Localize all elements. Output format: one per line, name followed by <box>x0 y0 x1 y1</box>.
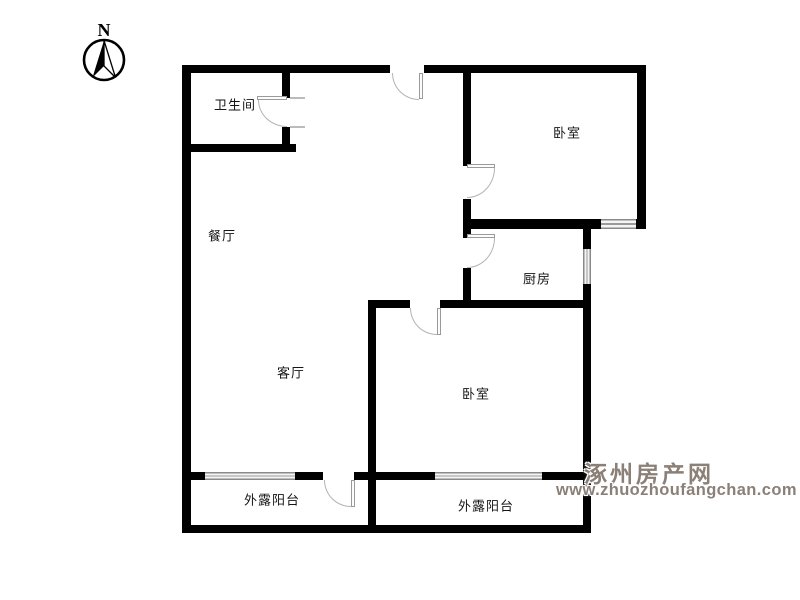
door-swing-kitchen <box>467 238 495 268</box>
window-kitchen <box>583 249 591 284</box>
wall-bedroom-top-bottom-b <box>636 219 646 229</box>
room-label-kitchen: 厨房 <box>523 269 551 288</box>
compass-icon <box>81 37 127 83</box>
wall-living-bottom-b <box>295 472 323 480</box>
door-swing-bedroom-bottom <box>410 308 437 335</box>
door-swing-bedroom-top <box>467 168 495 198</box>
room-label-bedroom-bottom: 卧室 <box>462 384 490 403</box>
wall-right-outer-upper <box>637 65 646 229</box>
wall-bottom-outer <box>182 525 591 533</box>
watermark-site-url: www.zhuozhoufangchan.com <box>556 481 797 500</box>
door-leaf-bedroom-bottom <box>437 308 441 335</box>
door-jamb-bathroom-bottom <box>290 126 305 128</box>
wall-bedroom-bottom-left <box>368 300 376 533</box>
door-swing-entrance <box>392 73 419 100</box>
room-label-balcony-left: 外露阳台 <box>244 490 300 509</box>
wall-top-right <box>424 65 646 73</box>
wall-central-upper <box>463 73 471 166</box>
wall-living-bottom-a <box>182 472 205 480</box>
wall-mid-horizontal-b <box>440 300 591 308</box>
room-label-bathroom: 卫生间 <box>214 95 256 114</box>
wall-top-left <box>182 65 390 73</box>
wall-bedroom-bottom-bottom-a <box>372 472 435 480</box>
door-leaf-entrance <box>419 73 423 99</box>
room-label-living: 客厅 <box>277 363 305 382</box>
window-bedroom-bottom <box>435 472 542 480</box>
room-label-balcony-right: 外露阳台 <box>458 496 514 515</box>
floor-plan: N <box>0 0 800 600</box>
wall-living-bottom-c <box>354 472 372 480</box>
wall-bedroom-top-bottom-a <box>463 219 601 229</box>
window-bedroom-top <box>601 219 636 229</box>
door-jamb-bathroom-top <box>290 97 305 99</box>
door-swing-bathroom <box>258 100 287 127</box>
wall-bathroom-right-a <box>282 73 290 98</box>
wall-left-outer <box>182 65 191 533</box>
wall-central-mid <box>463 199 471 238</box>
door-swing-balcony <box>324 480 351 507</box>
door-leaf-balcony <box>351 480 355 507</box>
wall-right-lower-a <box>583 219 591 249</box>
room-label-dining: 餐厅 <box>208 226 236 245</box>
room-label-bedroom-top: 卧室 <box>553 123 581 142</box>
window-living-room <box>205 472 295 480</box>
wall-bathroom-bottom <box>191 144 296 152</box>
